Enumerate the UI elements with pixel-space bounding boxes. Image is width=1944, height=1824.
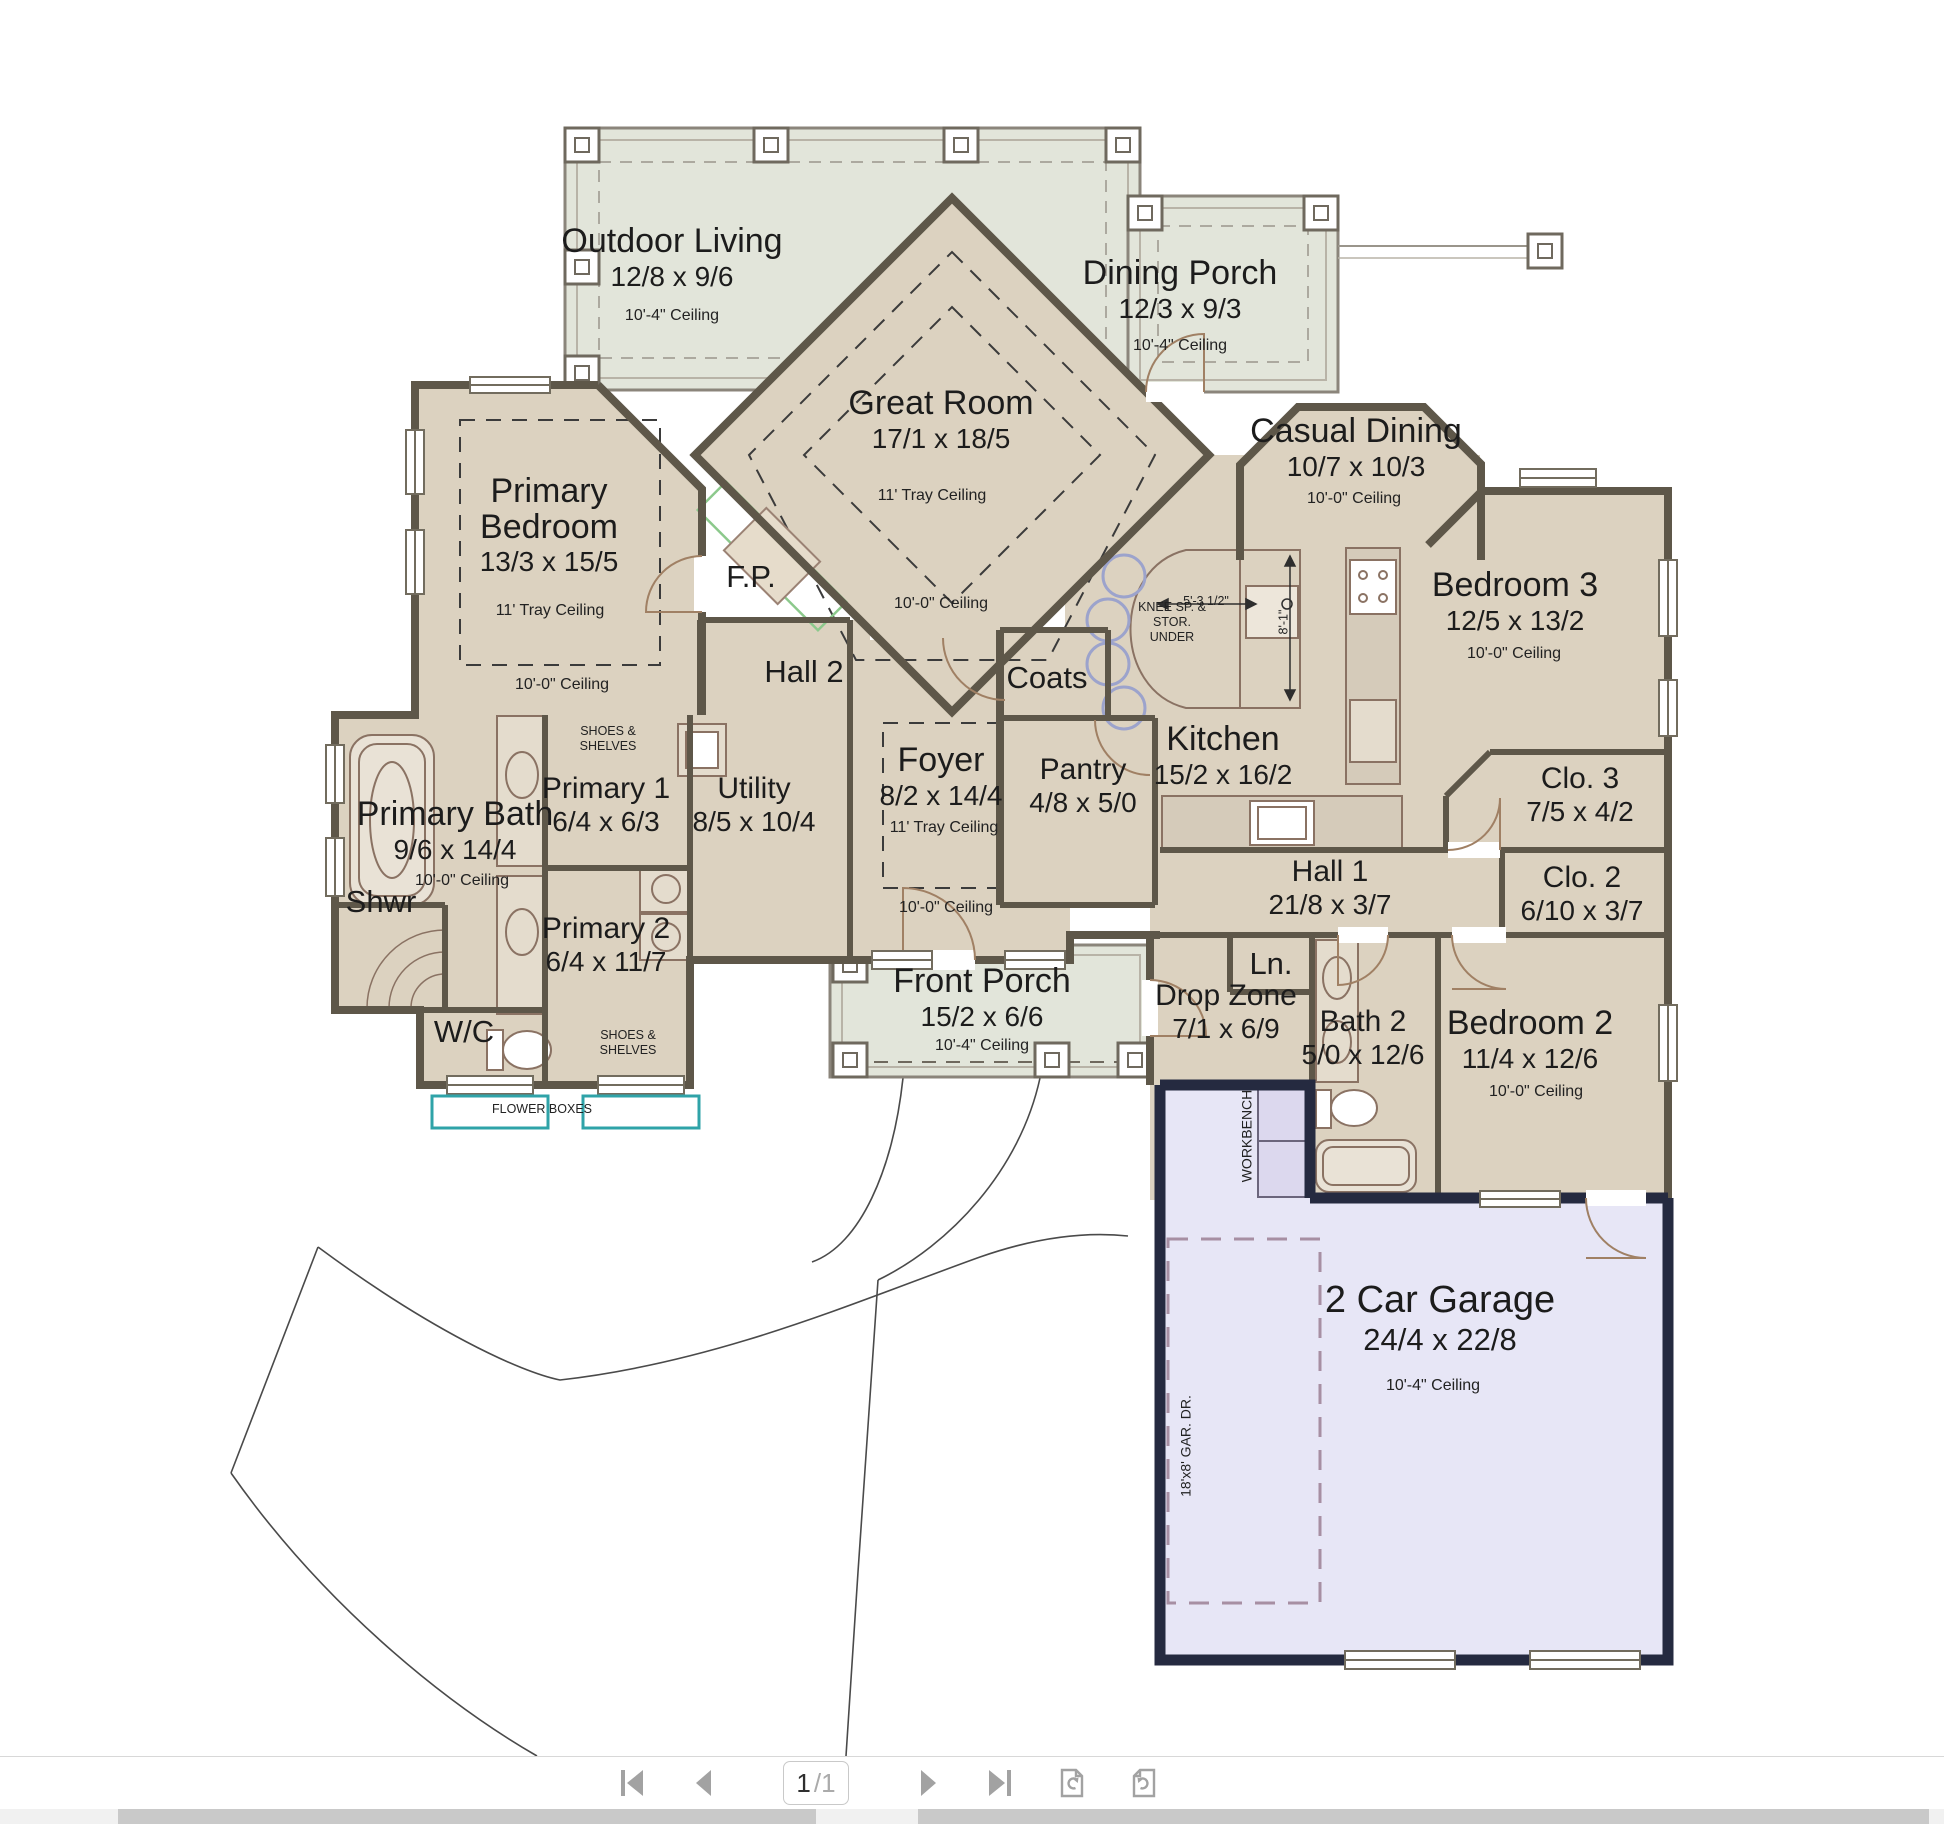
rotate-counterclockwise-button[interactable] <box>1053 1764 1091 1802</box>
room-label-drop-zone: Drop Zone 7/1 x 6/9 <box>1155 980 1297 1045</box>
primary-bath-ceiling-note: 10'-0" Ceiling <box>415 872 509 890</box>
room-label-primary-bedroom: Primary Bedroom 13/3 x 15/5 <box>432 474 667 579</box>
previous-page-icon <box>686 1765 722 1801</box>
coats-label: Coats <box>1007 660 1088 696</box>
workbench-note: WORKBENCH <box>1239 1090 1256 1183</box>
room-label-primary2: Primary 2 6/4 x 11/7 <box>542 913 670 978</box>
room-label-clo3: Clo. 3 7/5 x 4/2 <box>1526 763 1633 828</box>
floorplan-viewer: Outdoor Living 12/8 x 9/6 10'-4" Ceiling… <box>0 0 1944 1824</box>
linen-label: Ln. <box>1249 946 1292 982</box>
great-room-lower-ceiling-note: 10'-0" Ceiling <box>894 595 988 613</box>
page-number-input[interactable]: 1 /1 <box>783 1761 849 1805</box>
room-label-outdoor-living: Outdoor Living 12/8 x 9/6 10'-4" Ceiling <box>561 224 782 325</box>
flower-boxes-note: FLOWER BOXES <box>492 1102 592 1117</box>
last-page-icon <box>982 1765 1018 1801</box>
room-label-bath2: Bath 2 5/0 x 12/6 <box>1302 1006 1425 1071</box>
rotate-counterclockwise-icon <box>1054 1765 1090 1801</box>
next-page-button[interactable] <box>909 1764 947 1802</box>
island-depth-dimension: 8'-1" <box>1277 610 1292 635</box>
bedroom2-ceiling-note: 10'-0" Ceiling <box>1489 1083 1583 1101</box>
garage-door-note: 18'x8' GAR. DR. <box>1178 1395 1195 1497</box>
room-label-bedroom3: Bedroom 3 12/5 x 13/2 <box>1432 568 1598 637</box>
scrollbar-thumb-right[interactable] <box>918 1809 1929 1824</box>
room-label-bedroom2: Bedroom 2 11/4 x 12/6 <box>1447 1006 1613 1075</box>
room-label-hall1: Hall 1 21/8 x 3/7 <box>1269 856 1392 921</box>
site-driveway-lines <box>231 1078 1128 1756</box>
great-room-tray-ceiling-note: 11' Tray Ceiling <box>878 487 987 505</box>
room-label-kitchen: Kitchen 15/2 x 16/2 <box>1154 722 1293 791</box>
wc-label: W/C <box>434 1014 494 1050</box>
shoes-shelves-note-1: SHOES & SHELVES <box>568 724 648 754</box>
first-page-icon <box>614 1765 650 1801</box>
last-page-button[interactable] <box>981 1764 1019 1802</box>
island-width-dimension: 5'-3 1/2" <box>1183 594 1229 609</box>
bedroom3-ceiling-note: 10'-0" Ceiling <box>1467 645 1561 663</box>
rotate-clockwise-button[interactable] <box>1125 1764 1163 1802</box>
room-label-foyer: Foyer 8/2 x 14/4 <box>880 743 1003 812</box>
room-label-front-porch: Front Porch 15/2 x 6/6 10'-4" Ceiling <box>893 964 1071 1055</box>
foyer-tray-ceiling-note: 11' Tray Ceiling <box>890 819 999 837</box>
casual-dining-ceiling-note: 10'-0" Ceiling <box>1307 490 1401 508</box>
room-label-pantry: Pantry 4/8 x 5/0 <box>1029 754 1136 819</box>
room-label-casual-dining: Casual Dining 10/7 x 10/3 <box>1250 414 1462 483</box>
room-label-primary-bath: Primary Bath 9/6 x 14/4 <box>357 797 554 866</box>
first-page-button[interactable] <box>613 1764 651 1802</box>
hall2-label: Hall 2 <box>764 654 843 690</box>
primary-bedroom-lower-ceiling-note: 10'-0" Ceiling <box>515 676 609 694</box>
shoes-shelves-note-2: SHOES & SHELVES <box>588 1028 668 1058</box>
room-label-utility: Utility 8/5 x 10/4 <box>693 773 816 838</box>
fireplace-label: F.P. <box>726 559 775 595</box>
room-label-great-room: Great Room 17/1 x 18/5 <box>848 386 1033 455</box>
previous-page-button[interactable] <box>685 1764 723 1802</box>
primary-bedroom-tray-ceiling-note: 11' Tray Ceiling <box>496 602 605 620</box>
foyer-lower-ceiling-note: 10'-0" Ceiling <box>899 899 993 917</box>
room-label-garage: 2 Car Garage 24/4 x 22/8 <box>1325 1281 1555 1358</box>
rotate-clockwise-icon <box>1126 1765 1162 1801</box>
pager-toolbar: 1 /1 <box>0 1757 1944 1809</box>
next-page-icon <box>910 1765 946 1801</box>
page-total: /1 <box>814 1768 836 1799</box>
room-label-dining-porch: Dining Porch 12/3 x 9/3 10'-4" Ceiling <box>1083 256 1278 355</box>
room-label-primary1: Primary 1 6/4 x 6/3 <box>542 773 670 838</box>
room-label-clo2: Clo. 2 6/10 x 3/7 <box>1521 862 1644 927</box>
horizontal-scrollbar[interactable] <box>0 1809 1944 1824</box>
shower-label: Shwr <box>346 884 417 920</box>
scrollbar-thumb-left[interactable] <box>118 1809 816 1824</box>
page-current: 1 <box>796 1768 810 1799</box>
garage-ceiling-note: 10'-4" Ceiling <box>1386 1377 1480 1395</box>
